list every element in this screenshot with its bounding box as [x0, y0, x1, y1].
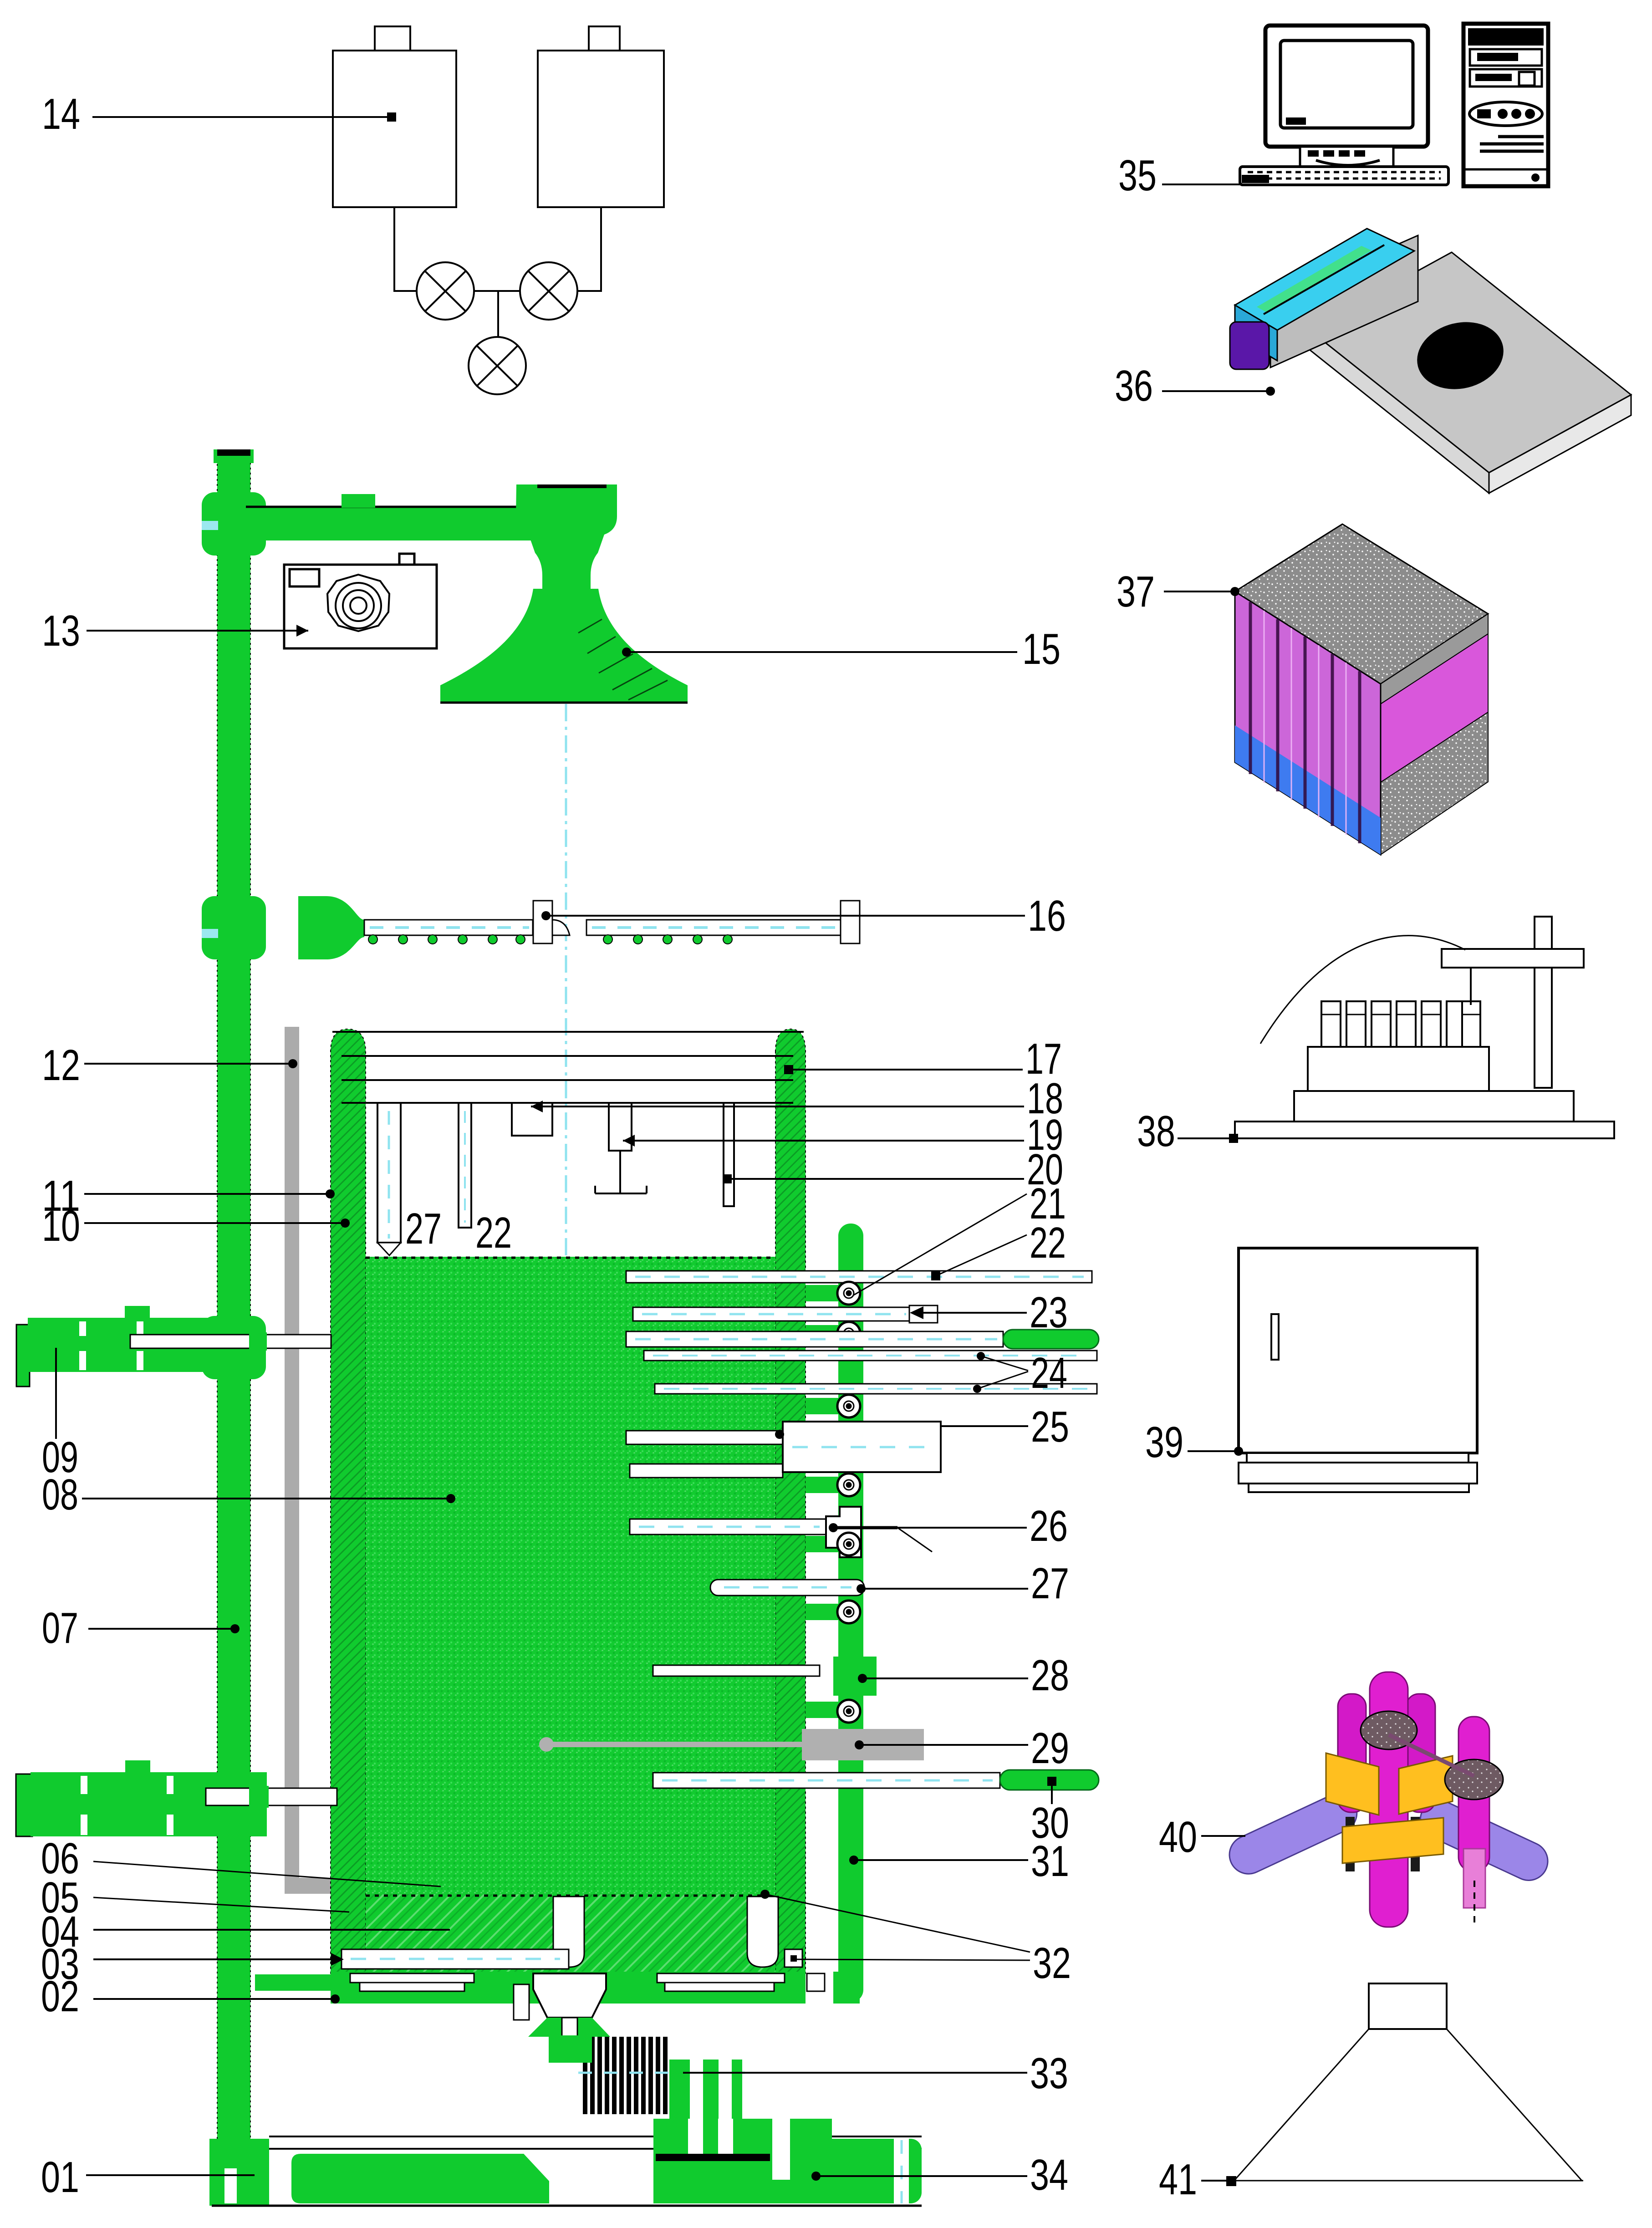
svg-text:33: 33: [1030, 2049, 1068, 2098]
svg-text:01: 01: [41, 2153, 79, 2202]
svg-text:10: 10: [42, 1202, 80, 1250]
svg-text:41: 41: [1159, 2155, 1197, 2204]
svg-text:37: 37: [1117, 567, 1155, 616]
svg-text:26: 26: [1030, 1502, 1068, 1550]
svg-text:16: 16: [1028, 892, 1066, 940]
svg-text:13: 13: [42, 607, 80, 655]
svg-text:29: 29: [1031, 1724, 1069, 1773]
svg-text:36: 36: [1115, 362, 1153, 410]
svg-text:32: 32: [1033, 1939, 1071, 1988]
svg-text:39: 39: [1145, 1418, 1183, 1467]
svg-text:27: 27: [405, 1204, 442, 1253]
svg-text:31: 31: [1031, 1837, 1069, 1886]
svg-text:28: 28: [1031, 1651, 1069, 1700]
svg-text:12: 12: [42, 1041, 80, 1090]
svg-text:07: 07: [42, 1604, 78, 1652]
svg-text:25: 25: [1031, 1402, 1069, 1451]
svg-text:38: 38: [1137, 1107, 1175, 1156]
svg-text:14: 14: [42, 90, 80, 138]
svg-text:15: 15: [1022, 625, 1061, 673]
svg-text:02: 02: [41, 1972, 79, 2021]
svg-text:35: 35: [1118, 151, 1157, 200]
svg-text:34: 34: [1030, 2151, 1068, 2199]
svg-text:27: 27: [1031, 1559, 1069, 1608]
svg-text:08: 08: [42, 1470, 78, 1519]
svg-text:24: 24: [1031, 1349, 1067, 1397]
svg-text:22: 22: [1030, 1219, 1066, 1267]
svg-text:40: 40: [1159, 1813, 1197, 1861]
svg-text:22: 22: [475, 1208, 512, 1257]
